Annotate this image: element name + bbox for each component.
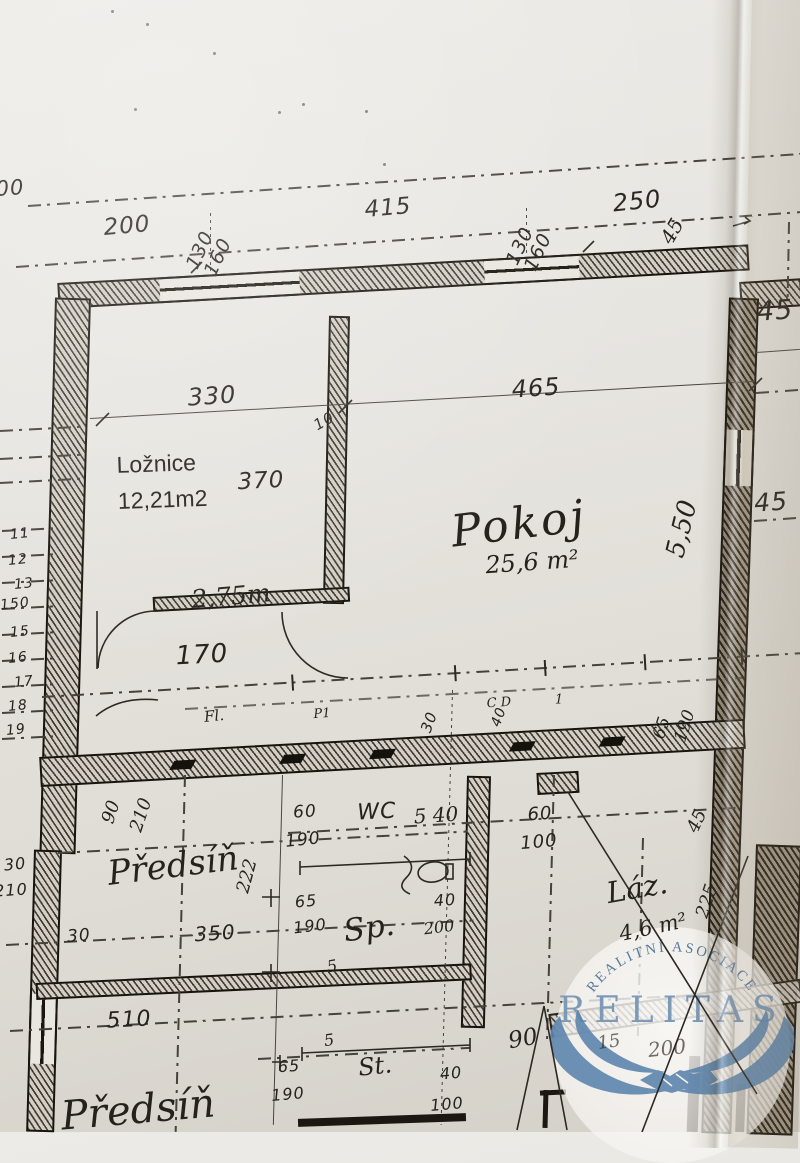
capped-dimension-line <box>300 852 470 875</box>
dim-label-510: 510 <box>106 1006 152 1033</box>
dim-label-465: 465 <box>511 372 562 403</box>
door-arc <box>98 611 156 668</box>
dim-label-90: 90 <box>506 1024 539 1055</box>
dim-label-30: 30 <box>3 853 27 874</box>
dim-label-60: 60 <box>527 803 553 826</box>
dim-label-540: 5 40 <box>413 801 459 828</box>
dim-label-60: 60 <box>293 801 318 823</box>
dim-label-250: 250 <box>611 185 662 218</box>
dim-label-330: 330 <box>187 380 238 411</box>
dim-label-150: 150 <box>0 594 31 613</box>
dim-label-100: 100 <box>519 830 558 854</box>
dim-label-200: 200 <box>103 211 152 241</box>
dim-label-15: 15 <box>9 623 30 641</box>
dim-label-210: 210 <box>0 879 28 900</box>
swoosh-mark <box>96 699 158 716</box>
dim-label-18: 18 <box>7 697 28 715</box>
arrow-mark <box>733 217 750 226</box>
dim-label-40: 40 <box>439 1063 463 1084</box>
dim-label-1: 1 <box>555 693 563 708</box>
dim-label-12: 12 <box>7 551 28 569</box>
room-label-wc: WC <box>357 798 397 825</box>
dim-label-00: 00 <box>0 175 25 201</box>
door-arc <box>282 612 348 678</box>
dim-label-370: 370 <box>237 467 285 495</box>
photographed-floorplan-page: { "rooms": { "loznice": {"name": "Ložnic… <box>0 0 800 1132</box>
dim-label-200: 200 <box>647 1034 687 1062</box>
dim-label-65: 65 <box>294 891 318 912</box>
room-label-spiz: Sp. <box>341 907 396 950</box>
dim-label-45: 45 <box>753 486 789 517</box>
dim-label-17: 17 <box>13 673 34 691</box>
dim-label-40: 40 <box>433 890 457 911</box>
beam-marks <box>262 889 288 1071</box>
dim-label-415: 415 <box>364 193 413 223</box>
dim-label-15: 15 <box>596 1030 622 1054</box>
room-label-loznice: Ložnice 12,21m2 <box>116 445 208 519</box>
dim-label-100: 100 <box>429 1093 464 1115</box>
dim-label-30: 30 <box>66 925 91 947</box>
dim-label-190: 190 <box>284 828 321 852</box>
dim-label-16: 16 <box>7 649 28 667</box>
dim-label-65: 65 <box>277 1056 301 1077</box>
dim-label-190: 190 <box>270 1083 305 1105</box>
dim-label-13: 13 <box>13 575 34 593</box>
dim-label-Fl: Fl. <box>203 706 225 726</box>
dim-label-190: 190 <box>292 915 328 938</box>
dim-label-200: 200 <box>423 916 456 939</box>
room-name: Ložnice <box>116 445 207 484</box>
room-area: 12,21m2 <box>117 480 208 519</box>
dim-label-170: 170 <box>175 639 229 672</box>
drawing-overlay <box>0 0 800 1132</box>
dim-label-350: 350 <box>194 920 237 947</box>
dim-label-11: 11 <box>9 525 30 543</box>
dim-label-19: 19 <box>5 721 26 739</box>
room-label-stoupacka: St. <box>357 1050 393 1081</box>
dim-label-P1: P1 <box>313 706 331 722</box>
dim-label-45: 45 <box>756 294 794 327</box>
toilet-icon <box>417 860 449 884</box>
